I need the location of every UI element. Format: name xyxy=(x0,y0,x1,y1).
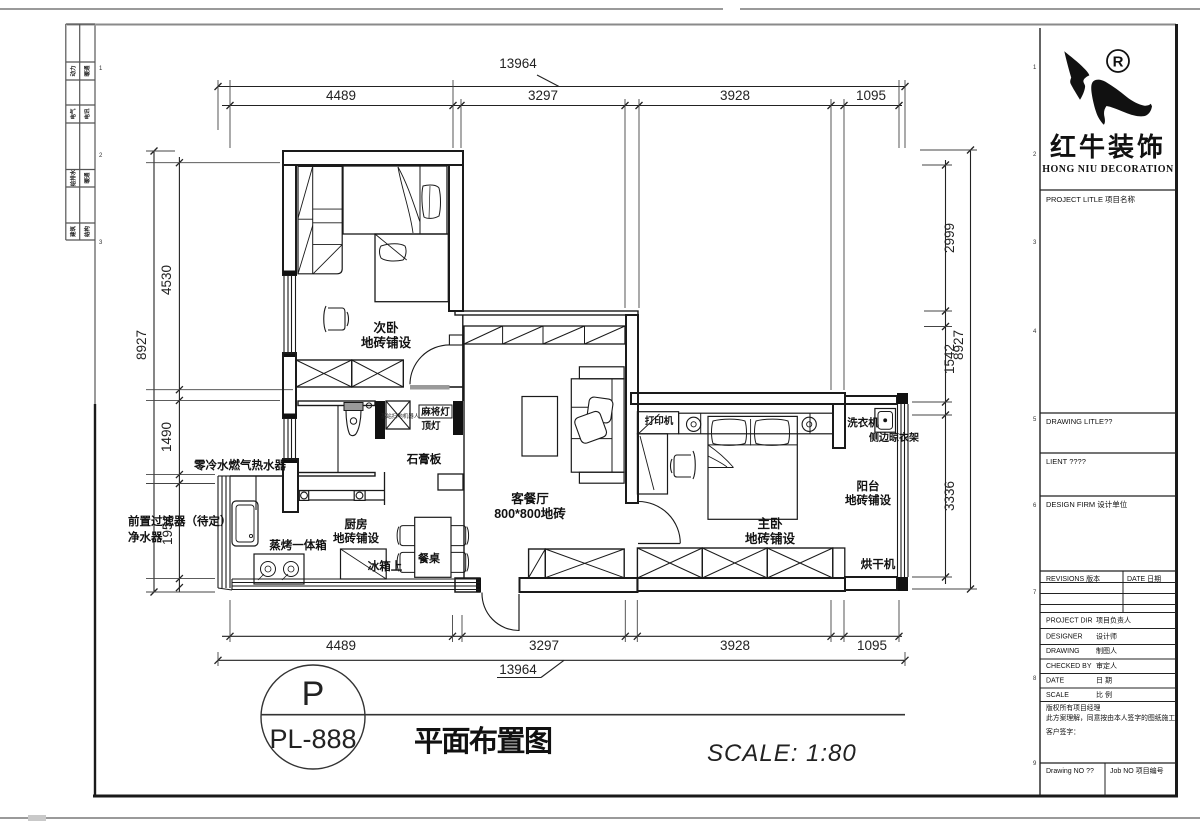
svg-text:3297: 3297 xyxy=(529,638,559,653)
svg-text:LIENT ????: LIENT ???? xyxy=(1046,457,1086,466)
svg-text:1490: 1490 xyxy=(159,422,174,452)
svg-text:1095: 1095 xyxy=(856,88,886,103)
svg-text:阳台: 阳台 xyxy=(857,479,880,493)
svg-text:DESIGN FIRM 设计单位: DESIGN FIRM 设计单位 xyxy=(1046,499,1128,509)
svg-text:客餐厅: 客餐厅 xyxy=(510,491,549,506)
svg-text:暖通: 暖通 xyxy=(83,65,91,77)
svg-text:PROJECT LITLE 项目名称: PROJECT LITLE 项目名称 xyxy=(1046,194,1136,204)
svg-text:主卧: 主卧 xyxy=(757,516,783,531)
svg-text:4530: 4530 xyxy=(159,265,174,295)
svg-text:此方案理解，同意按由本人签字的图纸施工：: 此方案理解，同意按由本人签字的图纸施工： xyxy=(1046,713,1182,722)
svg-text:暖通: 暖通 xyxy=(83,172,91,184)
svg-text:制图人: 制图人 xyxy=(1096,646,1117,655)
svg-text:地砖铺设: 地砖铺设 xyxy=(333,531,379,545)
svg-text:3336: 3336 xyxy=(942,481,957,511)
svg-text:电讯: 电讯 xyxy=(83,108,91,120)
svg-text:3928: 3928 xyxy=(720,638,750,653)
svg-text:红牛装饰: 红牛装饰 xyxy=(1050,132,1166,162)
svg-text:餐桌: 餐桌 xyxy=(417,551,441,565)
svg-text:建筑: 建筑 xyxy=(69,226,77,238)
svg-text:次卧: 次卧 xyxy=(373,320,399,335)
svg-text:DATE 日期: DATE 日期 xyxy=(1127,575,1161,583)
svg-text:顶灯: 顶灯 xyxy=(421,420,441,432)
svg-text:版权所有项目经理: 版权所有项目经理 xyxy=(1046,703,1101,712)
svg-text:DRAWING: DRAWING xyxy=(1046,648,1080,655)
svg-text:客户签字：: 客户签字： xyxy=(1046,727,1080,736)
svg-text:DESIGNER: DESIGNER xyxy=(1046,634,1083,641)
svg-text:REVISIONS 版本: REVISIONS 版本 xyxy=(1046,574,1100,583)
svg-text:4489: 4489 xyxy=(326,638,356,653)
svg-text:8927: 8927 xyxy=(951,330,966,360)
svg-text:比 例: 比 例 xyxy=(1096,690,1112,699)
svg-text:PL-888: PL-888 xyxy=(269,724,356,754)
svg-text:DATE: DATE xyxy=(1046,678,1064,685)
svg-text:CHECKED BY: CHECKED BY xyxy=(1046,663,1092,670)
svg-text:HONG NIU DECORATION: HONG NIU DECORATION xyxy=(1042,164,1174,175)
svg-text:平面布置图: 平面布置图 xyxy=(414,725,552,758)
svg-text:地砖铺设: 地砖铺设 xyxy=(845,493,891,507)
svg-text:地砖铺设: 地砖铺设 xyxy=(361,335,412,350)
svg-text:1095: 1095 xyxy=(857,638,887,653)
svg-text:侧边晾衣架: 侧边晾衣架 xyxy=(869,431,919,444)
svg-text:前置过滤器（待定）: 前置过滤器（待定） xyxy=(128,514,232,528)
svg-text:3928: 3928 xyxy=(720,88,750,103)
svg-text:动力: 动力 xyxy=(69,65,77,77)
svg-text:蒸烤一体箱: 蒸烤一体箱 xyxy=(269,538,327,552)
svg-text:4489: 4489 xyxy=(326,88,356,103)
svg-text:R: R xyxy=(1113,54,1124,71)
svg-text:洗衣机: 洗衣机 xyxy=(847,416,879,429)
svg-text:P: P xyxy=(302,675,325,713)
svg-text:项目负责人: 项目负责人 xyxy=(1096,616,1131,625)
svg-text:2999: 2999 xyxy=(942,223,957,253)
svg-text:800*800地砖: 800*800地砖 xyxy=(494,506,566,521)
svg-text:零冷水燃气热水器: 零冷水燃气热水器 xyxy=(193,458,286,472)
svg-text:8927: 8927 xyxy=(134,330,149,360)
svg-text:13964: 13964 xyxy=(499,662,537,677)
svg-text:SCALE: SCALE xyxy=(1046,692,1069,699)
svg-text:烘干机: 烘干机 xyxy=(861,557,896,571)
svg-text:DRAWING LITLE??: DRAWING LITLE?? xyxy=(1046,417,1112,426)
svg-text:结构: 结构 xyxy=(83,226,91,238)
svg-text:净水器: 净水器 xyxy=(128,530,163,544)
svg-text:3297: 3297 xyxy=(528,88,558,103)
svg-text:日 期: 日 期 xyxy=(1096,677,1112,685)
svg-text:电气: 电气 xyxy=(69,108,77,120)
svg-text:设计师: 设计师 xyxy=(1096,632,1117,641)
svg-text:麻将灯: 麻将灯 xyxy=(420,406,450,418)
svg-text:打印机: 打印机 xyxy=(645,415,674,427)
svg-text:基站扫地机器人: 基站扫地机器人 xyxy=(381,412,420,420)
svg-text:地砖铺设: 地砖铺设 xyxy=(745,531,796,546)
svg-text:13964: 13964 xyxy=(499,56,537,71)
svg-text:PROJECT DIR: PROJECT DIR xyxy=(1046,618,1093,625)
svg-text:石膏板: 石膏板 xyxy=(406,452,442,466)
svg-text:厨房: 厨房 xyxy=(345,517,368,531)
svg-text:Job NO 项目编号: Job NO 项目编号 xyxy=(1110,766,1164,775)
svg-text:给排水: 给排水 xyxy=(69,169,77,186)
svg-text:SCALE: 1:80: SCALE: 1:80 xyxy=(707,740,857,767)
svg-text:审定人: 审定人 xyxy=(1096,661,1117,670)
svg-text:Drawing NO ??: Drawing NO ?? xyxy=(1046,768,1094,775)
